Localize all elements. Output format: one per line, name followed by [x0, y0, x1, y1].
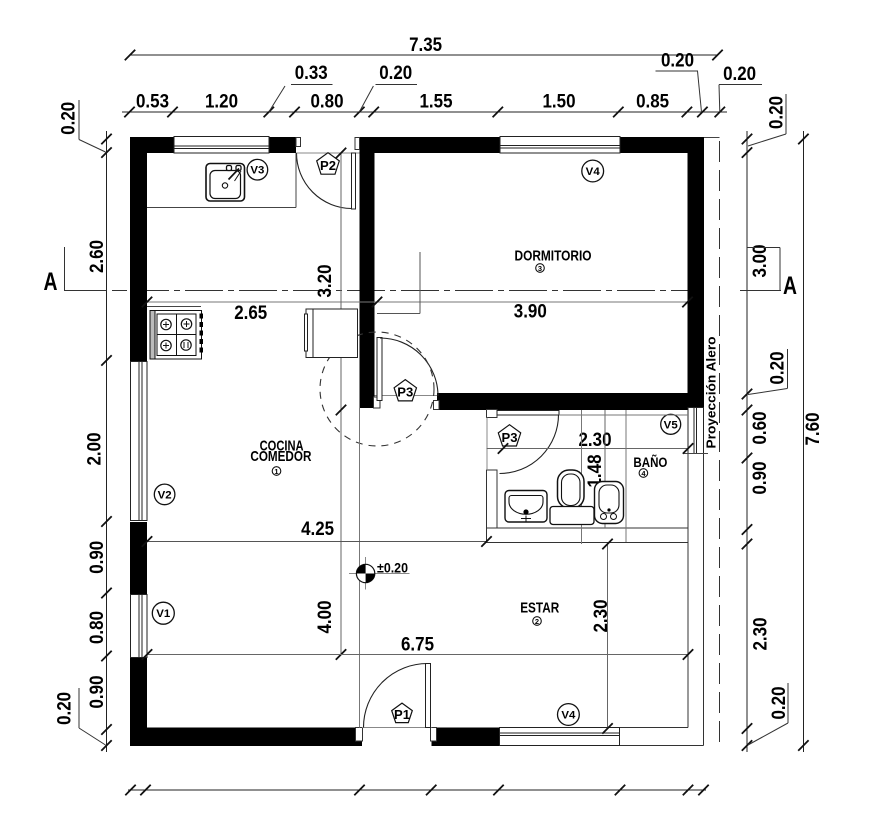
- svg-text:V3: V3: [250, 165, 264, 177]
- svg-text:P1: P1: [394, 708, 410, 722]
- svg-text:0.20: 0.20: [766, 96, 787, 129]
- svg-text:2: 2: [535, 617, 539, 626]
- svg-text:0.20: 0.20: [55, 692, 76, 725]
- svg-text:V1: V1: [156, 608, 170, 620]
- svg-text:3.00: 3.00: [750, 245, 771, 278]
- svg-text:3: 3: [538, 264, 542, 273]
- svg-text:0.60: 0.60: [750, 412, 771, 445]
- svg-text:0.20: 0.20: [661, 51, 694, 72]
- svg-text:1.55: 1.55: [420, 92, 453, 113]
- svg-text:3.90: 3.90: [514, 302, 547, 323]
- svg-text:P3: P3: [502, 431, 518, 445]
- svg-text:0.80: 0.80: [87, 611, 108, 644]
- svg-text:1: 1: [274, 467, 278, 476]
- svg-text:0.20: 0.20: [769, 687, 790, 720]
- svg-text:V4: V4: [561, 709, 576, 721]
- svg-text:4.25: 4.25: [301, 519, 334, 540]
- svg-text:0.20: 0.20: [768, 352, 789, 385]
- svg-text:0.90: 0.90: [87, 676, 108, 709]
- svg-text:0.20: 0.20: [379, 63, 412, 84]
- svg-text:A: A: [44, 268, 58, 296]
- svg-text:1.20: 1.20: [205, 92, 238, 113]
- svg-text:0.20: 0.20: [58, 102, 79, 135]
- svg-text:3.20: 3.20: [315, 265, 336, 298]
- svg-text:0.90: 0.90: [87, 541, 108, 574]
- svg-text:2.30: 2.30: [579, 430, 612, 451]
- svg-text:COMEDOR: COMEDOR: [250, 448, 311, 465]
- svg-text:V4: V4: [586, 166, 601, 178]
- svg-text:0.85: 0.85: [636, 92, 669, 113]
- svg-text:BAÑO: BAÑO: [633, 453, 667, 470]
- svg-text:7.60: 7.60: [803, 413, 824, 446]
- svg-text:0.90: 0.90: [750, 462, 771, 495]
- svg-text:2.60: 2.60: [87, 240, 108, 273]
- svg-text:0.33: 0.33: [295, 63, 328, 84]
- svg-text:1.50: 1.50: [543, 92, 576, 113]
- svg-text:2.00: 2.00: [84, 433, 105, 466]
- svg-text:0.20: 0.20: [723, 64, 756, 85]
- svg-text:7.35: 7.35: [409, 35, 442, 56]
- svg-text:A: A: [783, 272, 797, 300]
- svg-text:0.80: 0.80: [311, 92, 344, 113]
- svg-text:2.65: 2.65: [234, 303, 267, 324]
- svg-text:±0.20: ±0.20: [377, 560, 408, 576]
- svg-text:6.75: 6.75: [401, 635, 434, 656]
- svg-text:2.30: 2.30: [750, 618, 771, 651]
- svg-text:Proyección Alero: Proyección Alero: [704, 336, 719, 448]
- svg-text:P3: P3: [397, 386, 413, 400]
- svg-text:ESTAR: ESTAR: [520, 600, 559, 617]
- svg-text:4.00: 4.00: [315, 601, 336, 634]
- svg-text:DORMITORIO: DORMITORIO: [515, 248, 592, 265]
- svg-text:P2: P2: [320, 159, 336, 173]
- svg-text:V2: V2: [158, 489, 172, 501]
- svg-text:V5: V5: [664, 419, 678, 431]
- svg-text:0.53: 0.53: [136, 92, 169, 113]
- svg-text:2.30: 2.30: [591, 600, 612, 633]
